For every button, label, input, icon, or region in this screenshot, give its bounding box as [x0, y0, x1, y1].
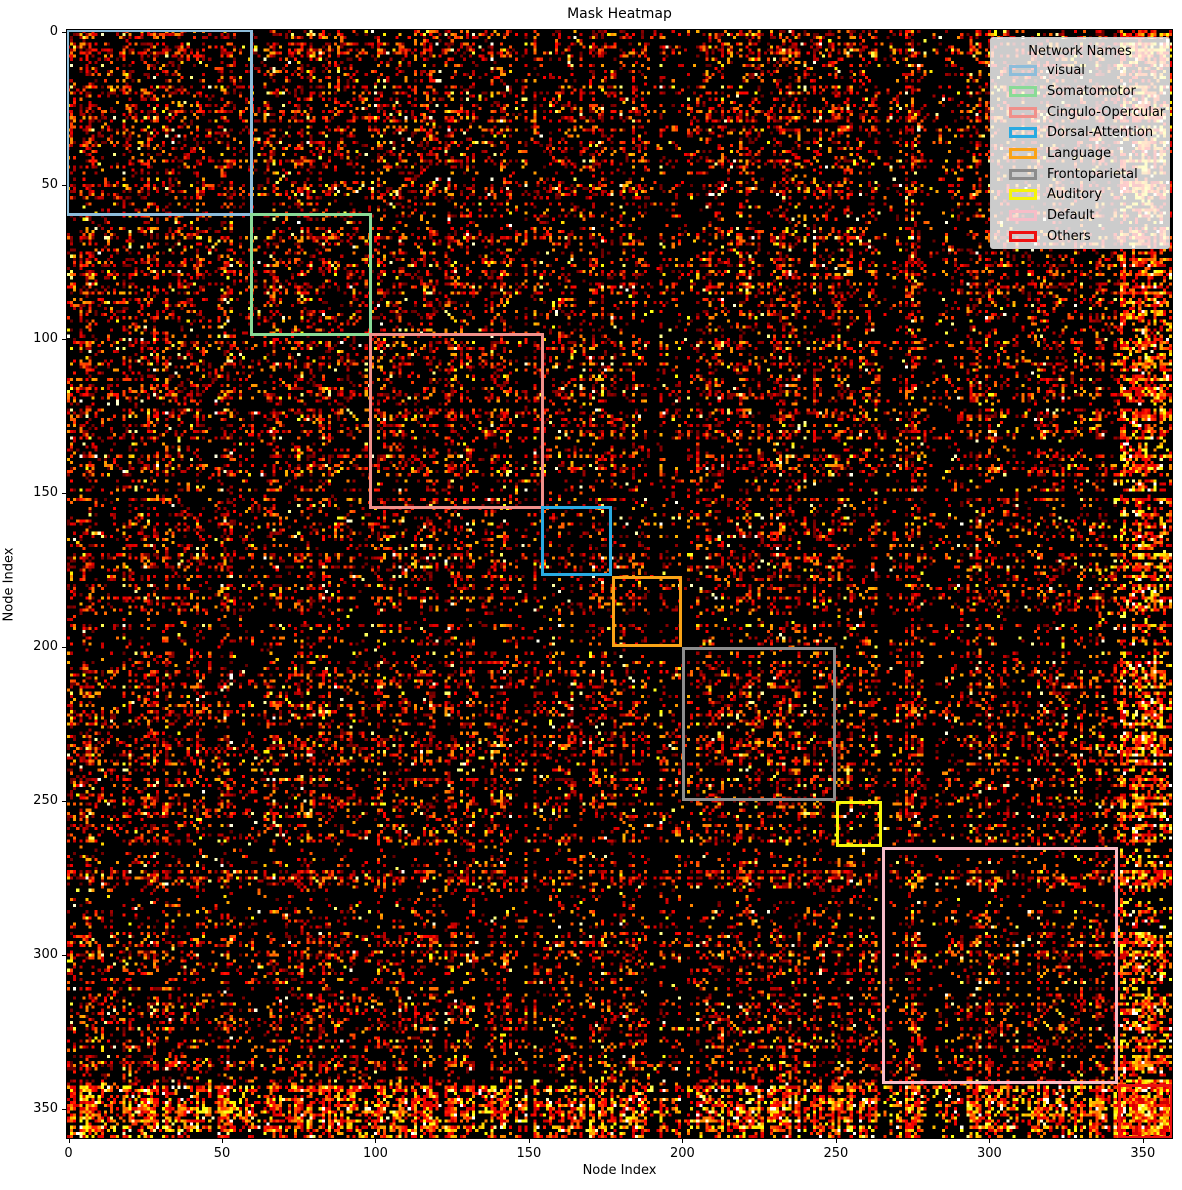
- y-tick-label: 150: [2, 485, 58, 500]
- legend-item: Dorsal-Attention: [999, 126, 1161, 140]
- network-box-language: [612, 576, 683, 647]
- network-box-visual: [66, 29, 253, 216]
- y-tick-mark: [62, 185, 66, 186]
- legend-swatch: [1009, 86, 1037, 97]
- y-tick-mark: [62, 32, 66, 33]
- legend-swatch: [1009, 189, 1037, 200]
- legend-item-label: Cingulo-Opercular: [1047, 105, 1165, 120]
- x-tick-mark: [1143, 1139, 1144, 1143]
- y-axis-label: Node Index: [2, 510, 17, 660]
- plot-area: Network Names visualSomatomotorCingulo-O…: [66, 29, 1173, 1139]
- legend-title: Network Names: [999, 44, 1161, 59]
- legend-item-label: Auditory: [1047, 187, 1102, 202]
- y-tick-label: 50: [2, 177, 58, 192]
- legend-item-label: Others: [1047, 229, 1091, 244]
- network-box-default: [882, 847, 1118, 1084]
- x-tick-label: 250: [814, 1146, 858, 1161]
- y-tick-label: 250: [2, 793, 58, 808]
- x-tick-label: 0: [47, 1146, 91, 1161]
- legend-item: visual: [999, 64, 1161, 78]
- legend-item: Others: [999, 230, 1161, 244]
- chart-title: Mask Heatmap: [67, 6, 1172, 22]
- legend-swatch: [1009, 65, 1037, 76]
- legend-item-label: Dorsal-Attention: [1047, 125, 1153, 140]
- network-box-others: [1118, 1084, 1173, 1139]
- legend-item: Cingulo-Opercular: [999, 105, 1161, 119]
- legend-items: visualSomatomotorCingulo-OpercularDorsal…: [999, 64, 1161, 243]
- legend-item: Frontoparietal: [999, 167, 1161, 181]
- legend-item: Language: [999, 147, 1161, 161]
- x-tick-mark: [989, 1139, 990, 1143]
- network-box-cingulo-opercular: [369, 333, 544, 508]
- x-tick-mark: [529, 1139, 530, 1143]
- network-box-auditory: [836, 801, 882, 847]
- x-tick-label: 350: [1121, 1146, 1165, 1161]
- y-tick-mark: [62, 801, 66, 802]
- y-tick-mark: [62, 339, 66, 340]
- legend: Network Names visualSomatomotorCingulo-O…: [990, 37, 1170, 249]
- legend-swatch: [1009, 231, 1037, 242]
- x-tick-mark: [69, 1139, 70, 1143]
- legend-item-label: Default: [1047, 208, 1095, 223]
- legend-item-label: Frontoparietal: [1047, 167, 1138, 182]
- y-tick-mark: [62, 493, 66, 494]
- legend-swatch: [1009, 148, 1037, 159]
- y-tick-label: 200: [2, 639, 58, 654]
- legend-item-label: Language: [1047, 146, 1111, 161]
- x-tick-label: 50: [200, 1146, 244, 1161]
- y-tick-label: 300: [2, 947, 58, 962]
- x-tick-mark: [682, 1139, 683, 1143]
- legend-item-label: visual: [1047, 63, 1085, 78]
- x-tick-mark: [222, 1139, 223, 1143]
- legend-item-label: Somatomotor: [1047, 84, 1136, 99]
- legend-item: Somatomotor: [999, 85, 1161, 99]
- x-tick-mark: [836, 1139, 837, 1143]
- x-tick-label: 300: [967, 1146, 1011, 1161]
- y-tick-mark: [62, 647, 66, 648]
- legend-item: Default: [999, 209, 1161, 223]
- network-box-somatomotor: [250, 213, 373, 336]
- legend-swatch: [1009, 210, 1037, 221]
- x-axis-label: Node Index: [67, 1163, 1172, 1178]
- network-box-dorsal-attention: [541, 506, 612, 577]
- y-tick-label: 100: [2, 331, 58, 346]
- y-tick-mark: [62, 1109, 66, 1110]
- figure: Mask Heatmap Network Names visualSomatom…: [0, 0, 1182, 1190]
- legend-swatch: [1009, 127, 1037, 138]
- x-tick-label: 150: [507, 1146, 551, 1161]
- y-tick-label: 350: [2, 1101, 58, 1116]
- y-tick-mark: [62, 955, 66, 956]
- x-tick-mark: [375, 1139, 376, 1143]
- x-tick-label: 100: [353, 1146, 397, 1161]
- x-tick-label: 200: [660, 1146, 704, 1161]
- legend-item: Auditory: [999, 188, 1161, 202]
- y-tick-label: 0: [2, 24, 58, 39]
- legend-swatch: [1009, 107, 1037, 118]
- legend-swatch: [1009, 169, 1037, 180]
- network-box-frontoparietal: [682, 647, 835, 801]
